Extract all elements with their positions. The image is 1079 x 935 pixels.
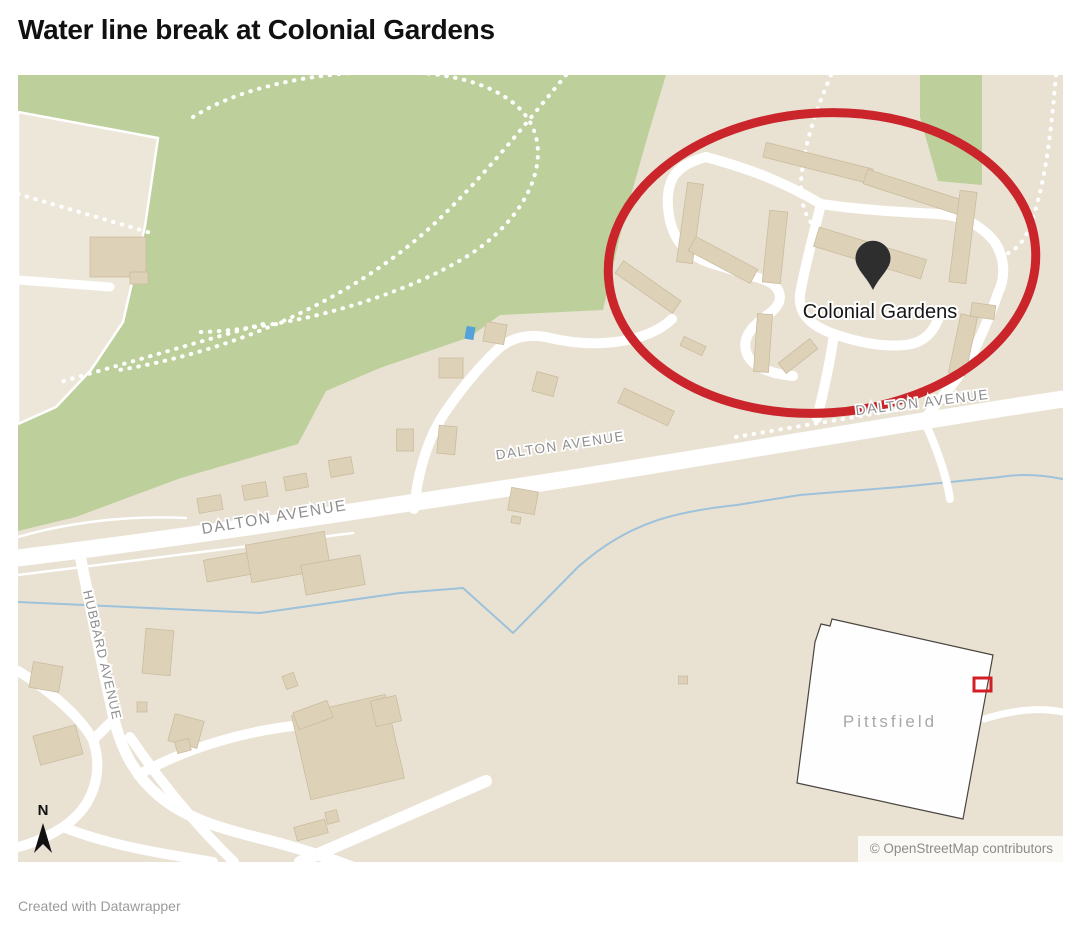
- north-arrow-label: N: [38, 802, 49, 819]
- inset-label: Pittsfield: [843, 712, 937, 731]
- inset-locator: Pittsfield: [797, 619, 993, 819]
- map-canvas: Colonial Gardens DALTON AVENUE DALTON AV…: [18, 75, 1063, 862]
- map-attribution-link[interactable]: © OpenStreetMap contributors: [858, 836, 1063, 862]
- map-svg: Colonial Gardens DALTON AVENUE DALTON AV…: [18, 75, 1063, 862]
- footer-credit-link[interactable]: Created with Datawrapper: [18, 898, 181, 914]
- page-title: Water line break at Colonial Gardens: [18, 14, 495, 46]
- page: Water line break at Colonial Gardens: [0, 0, 1079, 935]
- marker-label: Colonial Gardens: [803, 301, 958, 323]
